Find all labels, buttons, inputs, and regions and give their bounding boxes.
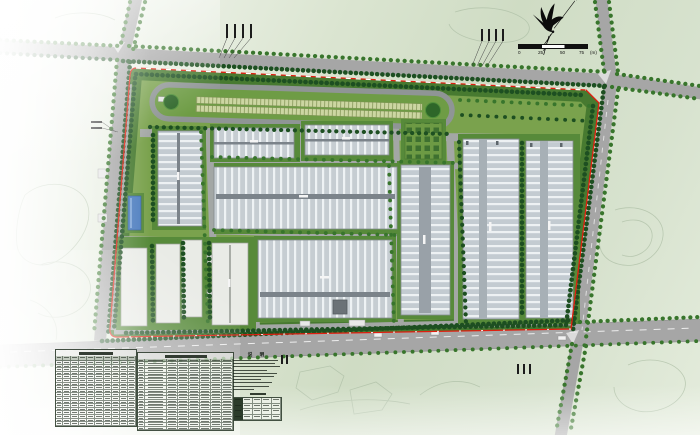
legend-subtitle-illegible (250, 393, 266, 396)
building-schedule-table (137, 352, 234, 431)
table-title-illegible (79, 352, 113, 355)
workshop-row1-a (214, 128, 294, 158)
scale-bar-segments (518, 44, 588, 49)
scale-tick-75: 75 (579, 50, 584, 55)
scale-bar: 0 25 50 75 (m) (518, 44, 588, 49)
economic-indicator-table (55, 349, 137, 427)
table-grid (138, 359, 233, 430)
table-title-illegible (165, 355, 207, 358)
legend-table (233, 397, 282, 421)
warehouse-center-lower (258, 240, 392, 318)
utility-yard (405, 123, 442, 159)
north-star-glyph: ✳ (572, 0, 580, 3)
site-plan-stage: ✳ 0 25 50 75 (m) 说 明 (0, 0, 700, 435)
table-grid (56, 356, 136, 426)
notes-block: 说 明 (233, 352, 282, 421)
warehouse-center-upper (214, 167, 397, 229)
scale-tick-50: 50 (560, 50, 565, 55)
notes-lines (233, 360, 282, 390)
scale-tick-0: 0 (518, 50, 521, 55)
scale-tick-25: 25 (538, 50, 543, 55)
scale-unit: (m) (590, 50, 597, 55)
notes-title: 说 明 (233, 352, 282, 358)
workshop-row1-b (305, 125, 389, 155)
plant-tower (333, 300, 347, 314)
